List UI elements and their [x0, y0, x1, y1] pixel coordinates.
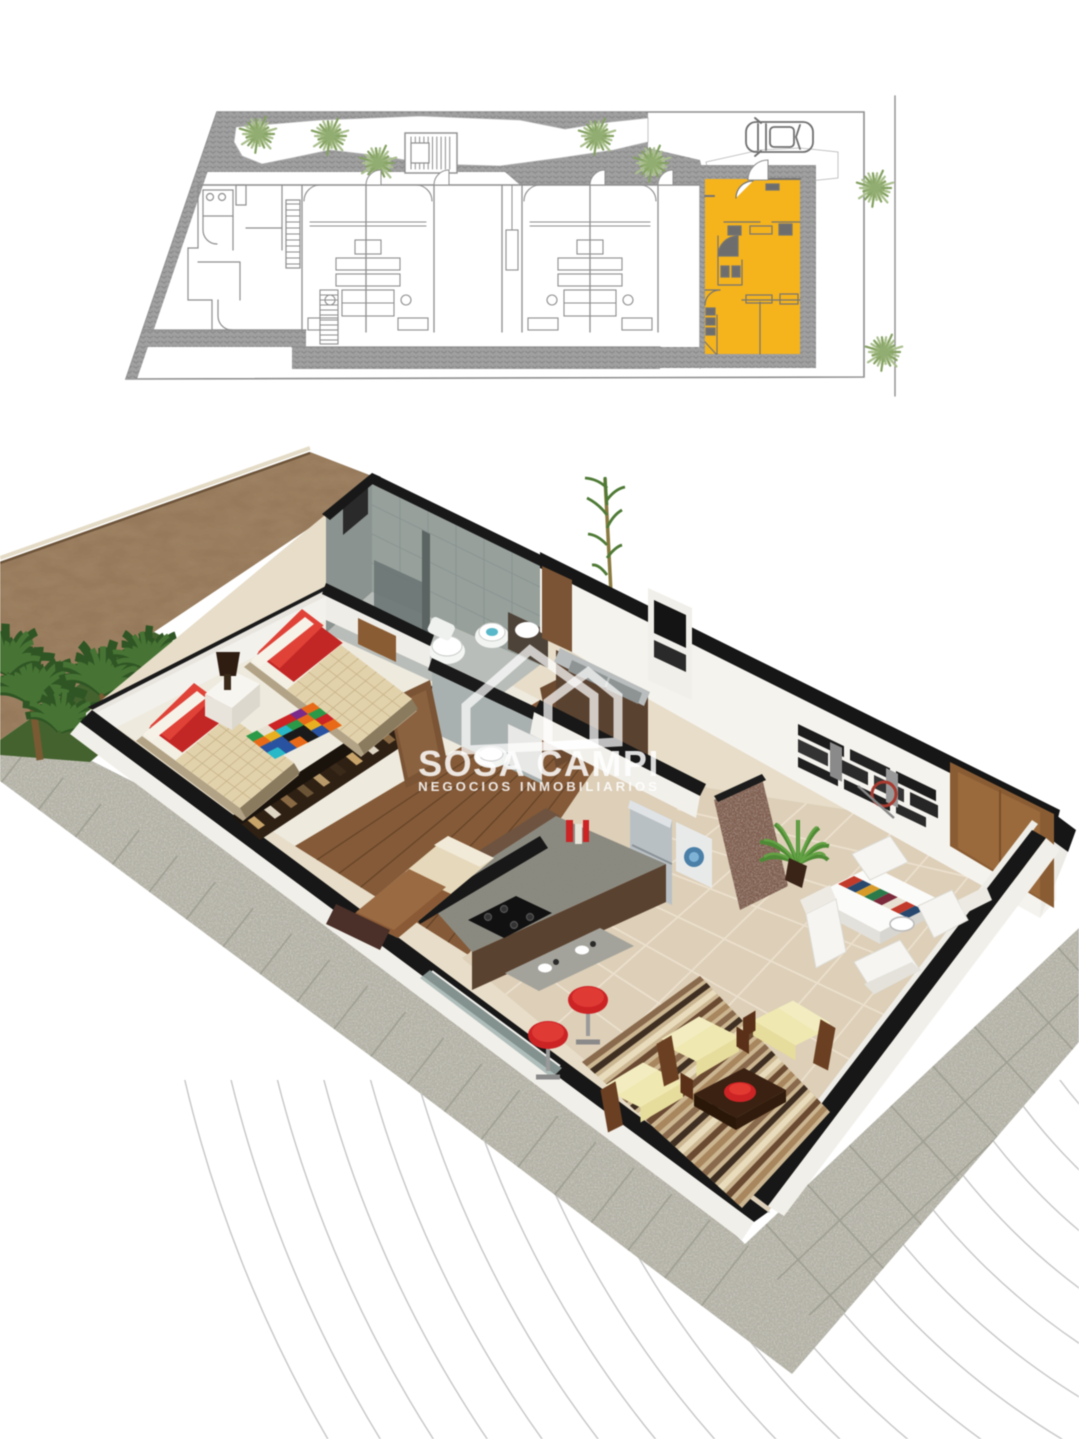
svg-text:SOSA CAMPI: SOSA CAMPI: [418, 743, 660, 784]
svg-text:NEGOCIOS INMOBILIARIOS: NEGOCIOS INMOBILIARIOS: [418, 779, 660, 794]
